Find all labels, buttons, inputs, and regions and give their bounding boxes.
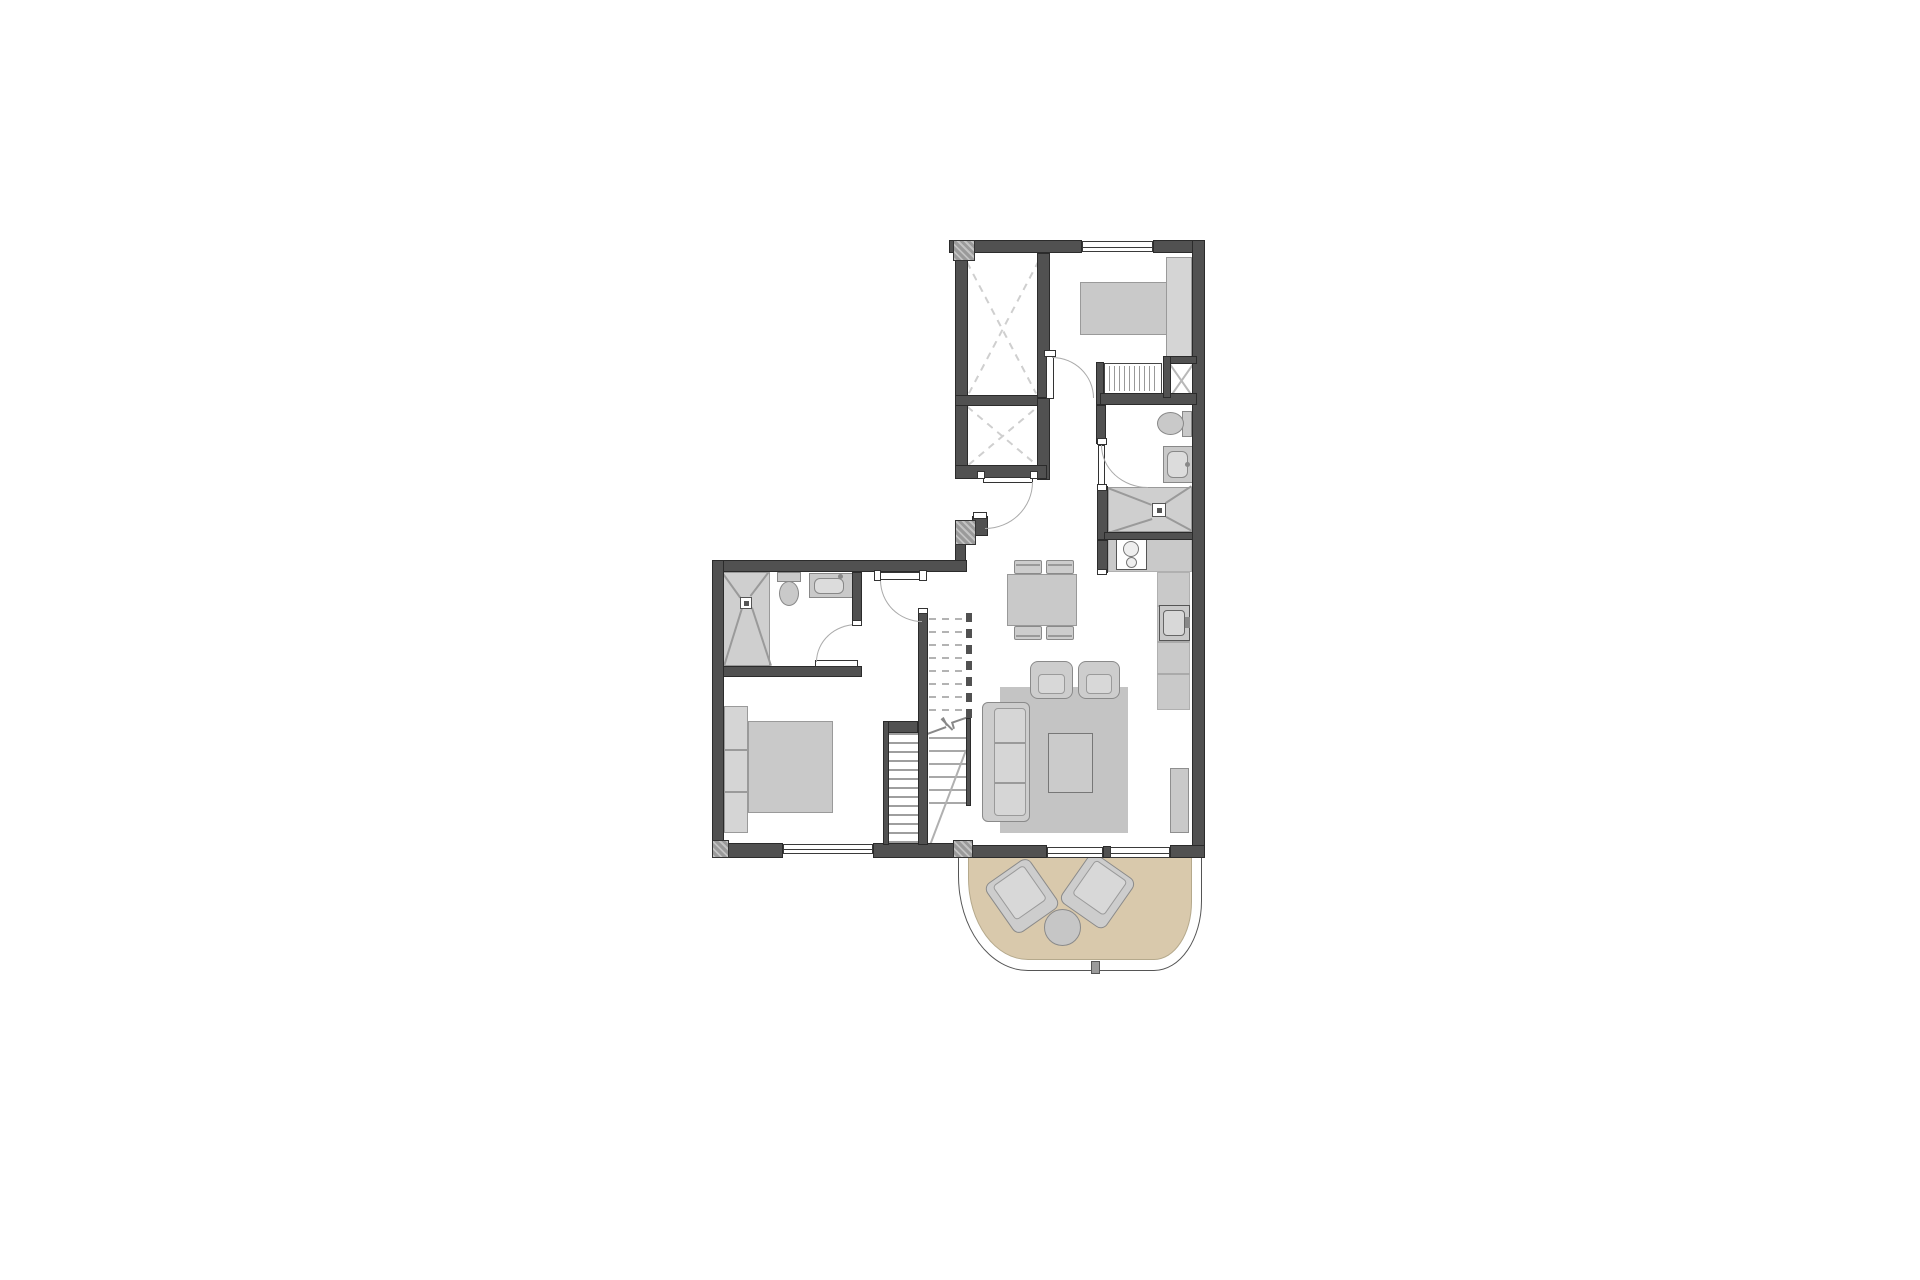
wall-bath2-right	[852, 572, 862, 623]
stairs-up-treads-dashed	[929, 618, 966, 720]
wall-bottom-c	[972, 845, 1047, 858]
window-balcony-door-1	[1047, 847, 1103, 858]
dining-chair-2	[1046, 560, 1074, 574]
door-arc-stair-hall	[880, 580, 922, 622]
wall-bath1-top	[1100, 393, 1197, 405]
corner-hatch-entry-step	[955, 520, 976, 545]
living-armchair-2	[1078, 661, 1120, 699]
wall-left-upper	[955, 253, 968, 478]
bed2-headboard	[724, 706, 748, 833]
kitchen-sink-faucet	[1185, 617, 1190, 628]
corner-hatch-top-left	[953, 240, 975, 261]
door-leaf-stair-hall	[880, 572, 923, 580]
window-bedroom2-bottom	[783, 844, 873, 854]
door-arc-bath2	[816, 624, 857, 662]
corner-hatch-bottom-left	[712, 840, 729, 858]
bed1-mattress	[1080, 282, 1167, 335]
floor-plan	[0, 0, 1920, 1280]
wall-right-main	[1192, 240, 1205, 858]
window-balcony-door-2	[1110, 847, 1170, 858]
wall-stair-newel	[918, 612, 928, 845]
living-armchair-1-seat	[1038, 674, 1065, 694]
jamb-kitchen-stub	[1097, 569, 1107, 575]
coffee-table	[1048, 733, 1093, 793]
stairs-break-line-a	[927, 726, 947, 734]
door-arc-bath1	[1101, 445, 1148, 488]
sink1-faucet	[1185, 462, 1190, 467]
dining-table	[1007, 574, 1077, 626]
bed1-headboard	[1166, 257, 1192, 359]
dining-chair-4	[1046, 626, 1074, 640]
jamb-entry-step	[973, 512, 987, 519]
dining-chair-2-back	[1048, 564, 1072, 566]
wall-stair-left-side	[883, 721, 889, 845]
stove-burner-small	[1126, 557, 1137, 568]
door-arc-bedroom1	[1052, 357, 1094, 398]
bed2-pillow-line-2	[724, 791, 748, 793]
toilet2-bowl	[779, 581, 799, 606]
window-bedroom1-top	[1082, 241, 1153, 252]
jamb-bath1-bottom	[1097, 484, 1107, 491]
jamb-bath2-top	[852, 620, 862, 626]
dining-chair-3	[1014, 626, 1042, 640]
bed2-pillow-line-1	[724, 749, 748, 751]
living-armchair-2-seat	[1086, 674, 1112, 694]
wall-bath2-bottom	[723, 666, 862, 677]
jamb-bath1-top	[1097, 438, 1107, 445]
toilet1-bowl	[1157, 412, 1184, 435]
jamb-stair-newel-top	[918, 608, 928, 614]
dining-chair-3-back	[1016, 635, 1040, 637]
shower2-tray	[723, 572, 770, 666]
balcony-chair-left-seat	[992, 865, 1047, 921]
kitchen-cabinet-line-2	[1157, 641, 1190, 643]
dining-chair-1	[1014, 560, 1042, 574]
kitchen-cabinet-line-3	[1157, 673, 1190, 675]
wall-lower-top	[712, 560, 967, 572]
sink2-faucet	[838, 574, 843, 579]
balcony-table	[1044, 909, 1081, 946]
balcony-post	[1091, 961, 1100, 974]
wall-stair-right-solid	[966, 718, 971, 806]
living-armchair-1	[1030, 661, 1073, 699]
stairs-down-treads	[889, 733, 918, 845]
sofa-cushion-line-2	[994, 782, 1026, 784]
wall-shower1-bottom	[1104, 532, 1193, 540]
jamb-bedroom1-door	[1044, 350, 1056, 357]
jamb-closet2-left	[977, 471, 985, 479]
stove-burner-large	[1123, 541, 1139, 557]
wall-closet-divider	[955, 395, 1050, 406]
jamb-stair-hall-right	[919, 570, 927, 581]
wall-shaft-left	[1163, 356, 1171, 398]
wall-bottom-b	[873, 843, 958, 858]
dining-chair-4-back	[1048, 635, 1072, 637]
jamb-closet2-right	[1030, 471, 1038, 479]
sink2-basin	[814, 578, 844, 594]
wall-lower-left	[712, 560, 724, 856]
stairs-open-rail-dashed	[966, 613, 972, 718]
shower2-drain-core	[744, 601, 749, 606]
shower1-drain-core	[1157, 508, 1162, 513]
dining-chair-1-back	[1016, 564, 1040, 566]
corner-hatch-balcony-pier	[953, 840, 973, 858]
door-arc-closet2	[985, 482, 1033, 529]
sofa-cushion-line-1	[994, 742, 1026, 744]
tv-sideboard	[1170, 768, 1189, 833]
jamb-stair-hall-left	[874, 570, 881, 581]
kitchen-sink-basin	[1163, 610, 1185, 636]
wall-bottom-d	[1170, 845, 1205, 858]
bed2-mattress	[748, 721, 833, 813]
bedroom1-radiator-fins	[1109, 366, 1158, 391]
sofa-seat	[994, 708, 1026, 816]
